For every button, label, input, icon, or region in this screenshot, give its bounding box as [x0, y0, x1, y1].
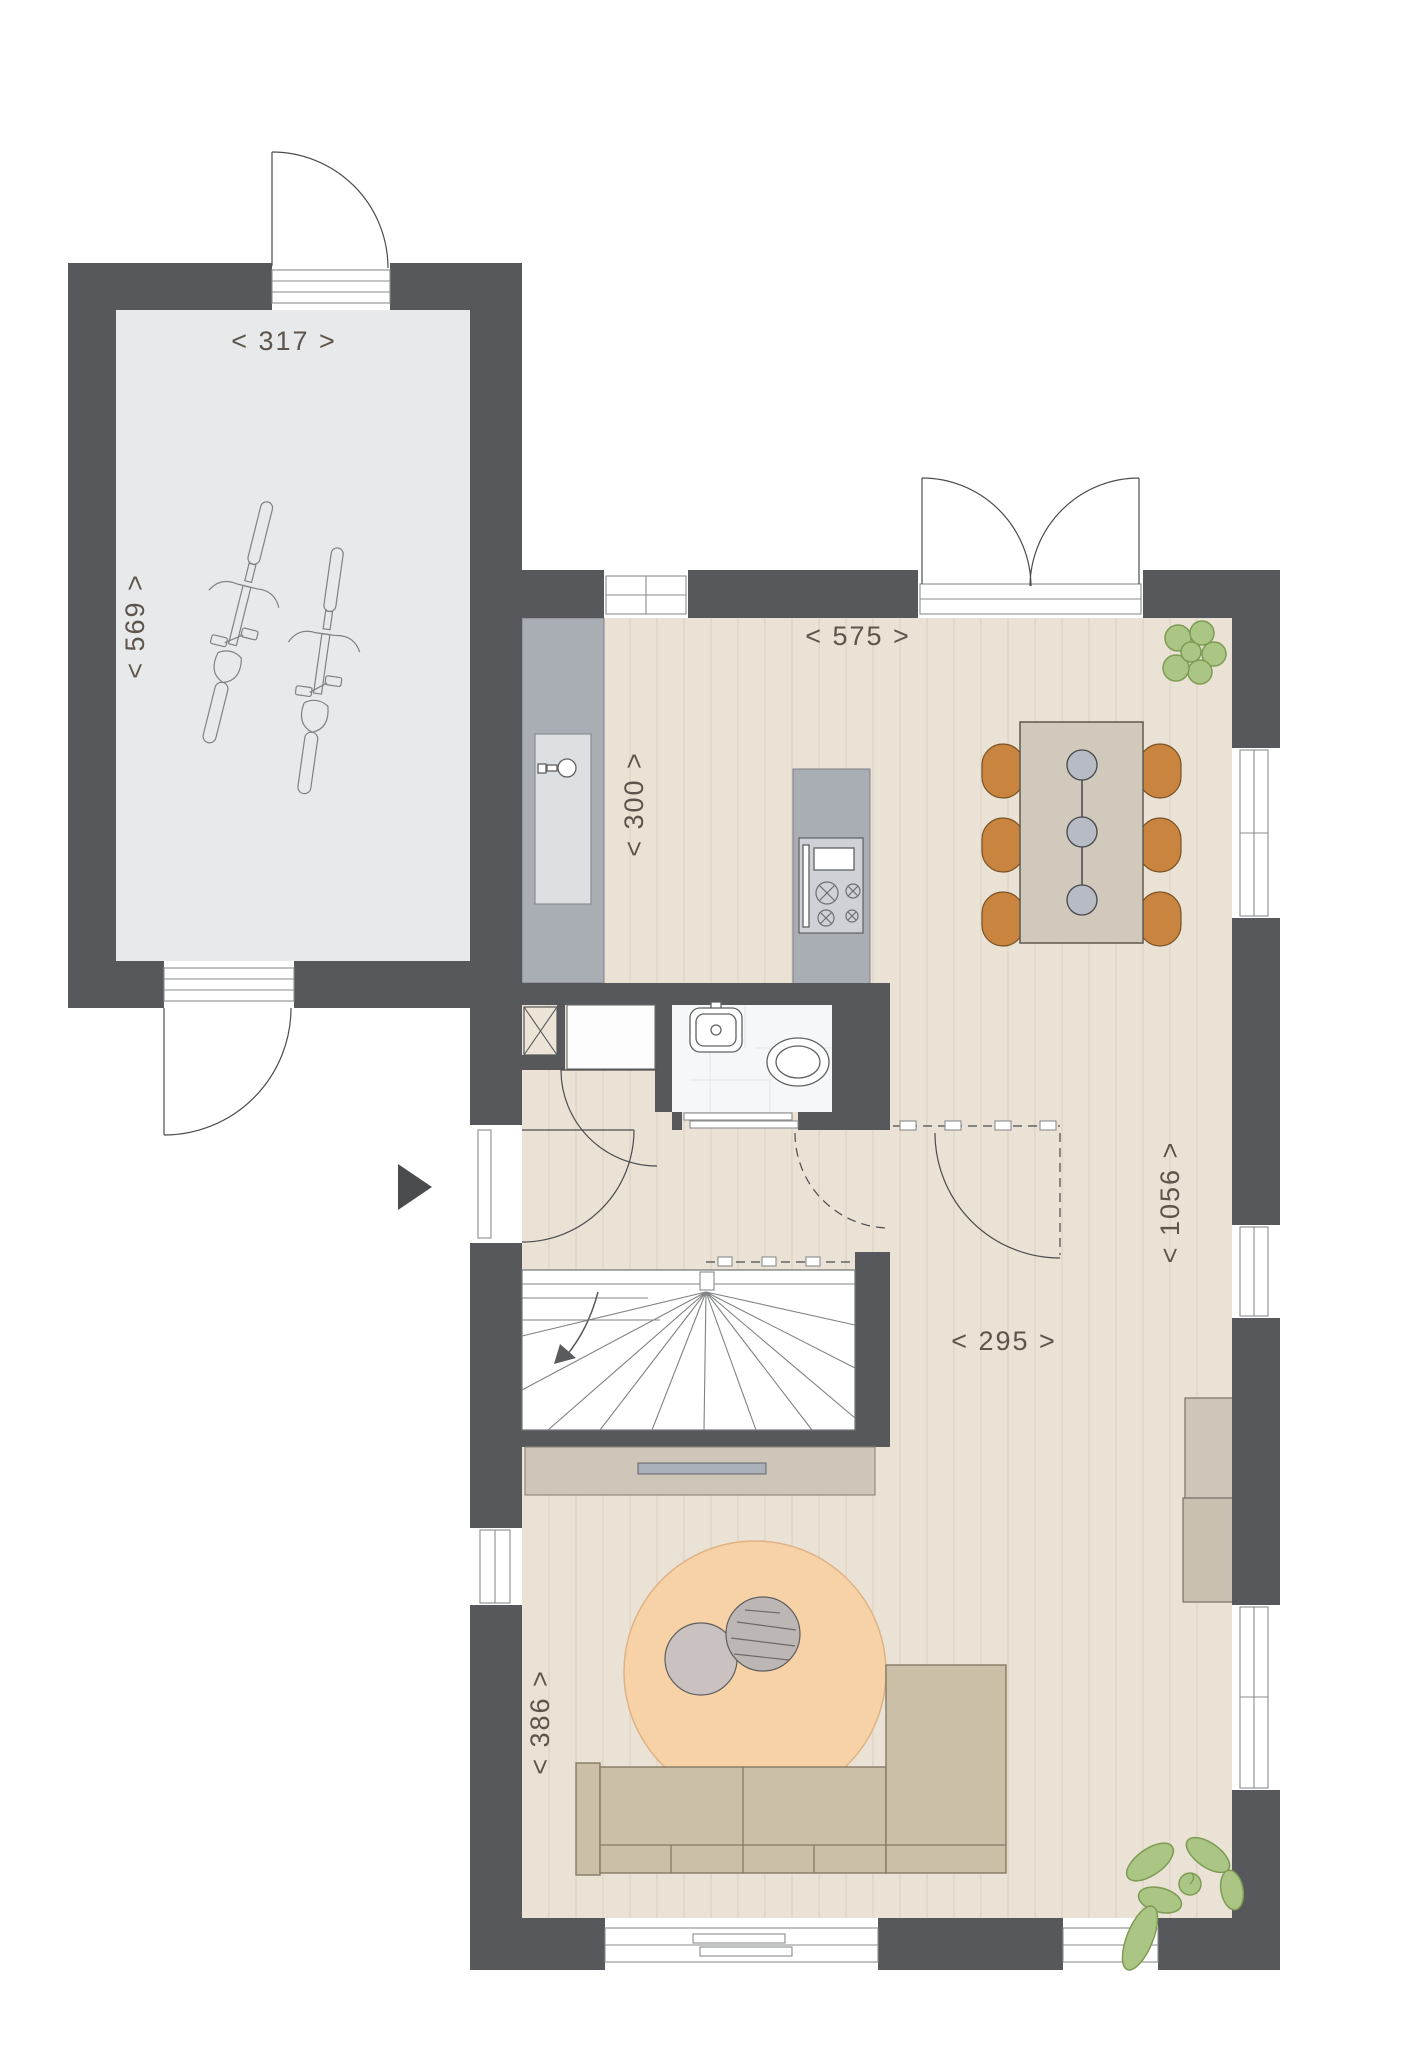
- pendant-lights-icon: [1067, 750, 1097, 915]
- garage-room: [116, 310, 470, 961]
- coffee-table-striped: [726, 1597, 800, 1671]
- garage-bottom-door: [164, 961, 294, 1135]
- tv-cabinet: [1183, 1398, 1237, 1602]
- dimension-label-garage-width: < 317 >: [231, 326, 337, 356]
- entrance-arrow-icon: [398, 1164, 432, 1210]
- floor-plan-canvas: < 317 > < 569 > < 575 > < 300 > < 1056 >…: [0, 0, 1412, 2048]
- garage-floor: [116, 310, 470, 961]
- dimension-label-top-width: < 575 >: [805, 621, 911, 651]
- window: [470, 1528, 522, 1605]
- sofa-armrest: [576, 1763, 600, 1875]
- dimension-label-garage-depth: < 569 >: [120, 573, 150, 679]
- sink-icon: [535, 734, 591, 904]
- chair: [1139, 892, 1181, 946]
- chair: [1139, 744, 1181, 798]
- dining-area: [982, 722, 1181, 946]
- sideboard: [525, 1447, 875, 1495]
- garage-top-door: [272, 152, 390, 310]
- toilet-room: [672, 1002, 832, 1128]
- staircase: [522, 1257, 875, 1495]
- dimension-label-mid-width: < 295 >: [951, 1326, 1057, 1356]
- window: [604, 570, 688, 618]
- toilet-sliding-door: [684, 1113, 798, 1128]
- window: [1232, 1605, 1280, 1790]
- technical-closet: [524, 1007, 557, 1055]
- sofa-chaise: [886, 1665, 1006, 1873]
- window: [1232, 1225, 1280, 1318]
- toilet-icon: [767, 1038, 829, 1086]
- double-door: [918, 478, 1143, 618]
- round-rug: [624, 1541, 886, 1803]
- chair: [1139, 818, 1181, 872]
- chair: [982, 892, 1024, 946]
- closet: [567, 1005, 655, 1069]
- washbasin-icon: [690, 1002, 742, 1052]
- chair: [982, 744, 1024, 798]
- window: [1232, 748, 1280, 918]
- floor-plan-page: < 317 > < 569 > < 575 > < 300 > < 1056 >…: [0, 0, 1412, 2048]
- chair: [982, 818, 1024, 872]
- kitchen-island: [793, 769, 870, 985]
- cooktop-icon: [799, 838, 863, 933]
- dimension-label-room-depth: < 1056 >: [1155, 1141, 1185, 1264]
- window: [605, 1918, 878, 1970]
- dimension-label-kitchen-width: < 300 >: [619, 751, 649, 857]
- dimension-label-living-width: < 386 >: [525, 1669, 555, 1775]
